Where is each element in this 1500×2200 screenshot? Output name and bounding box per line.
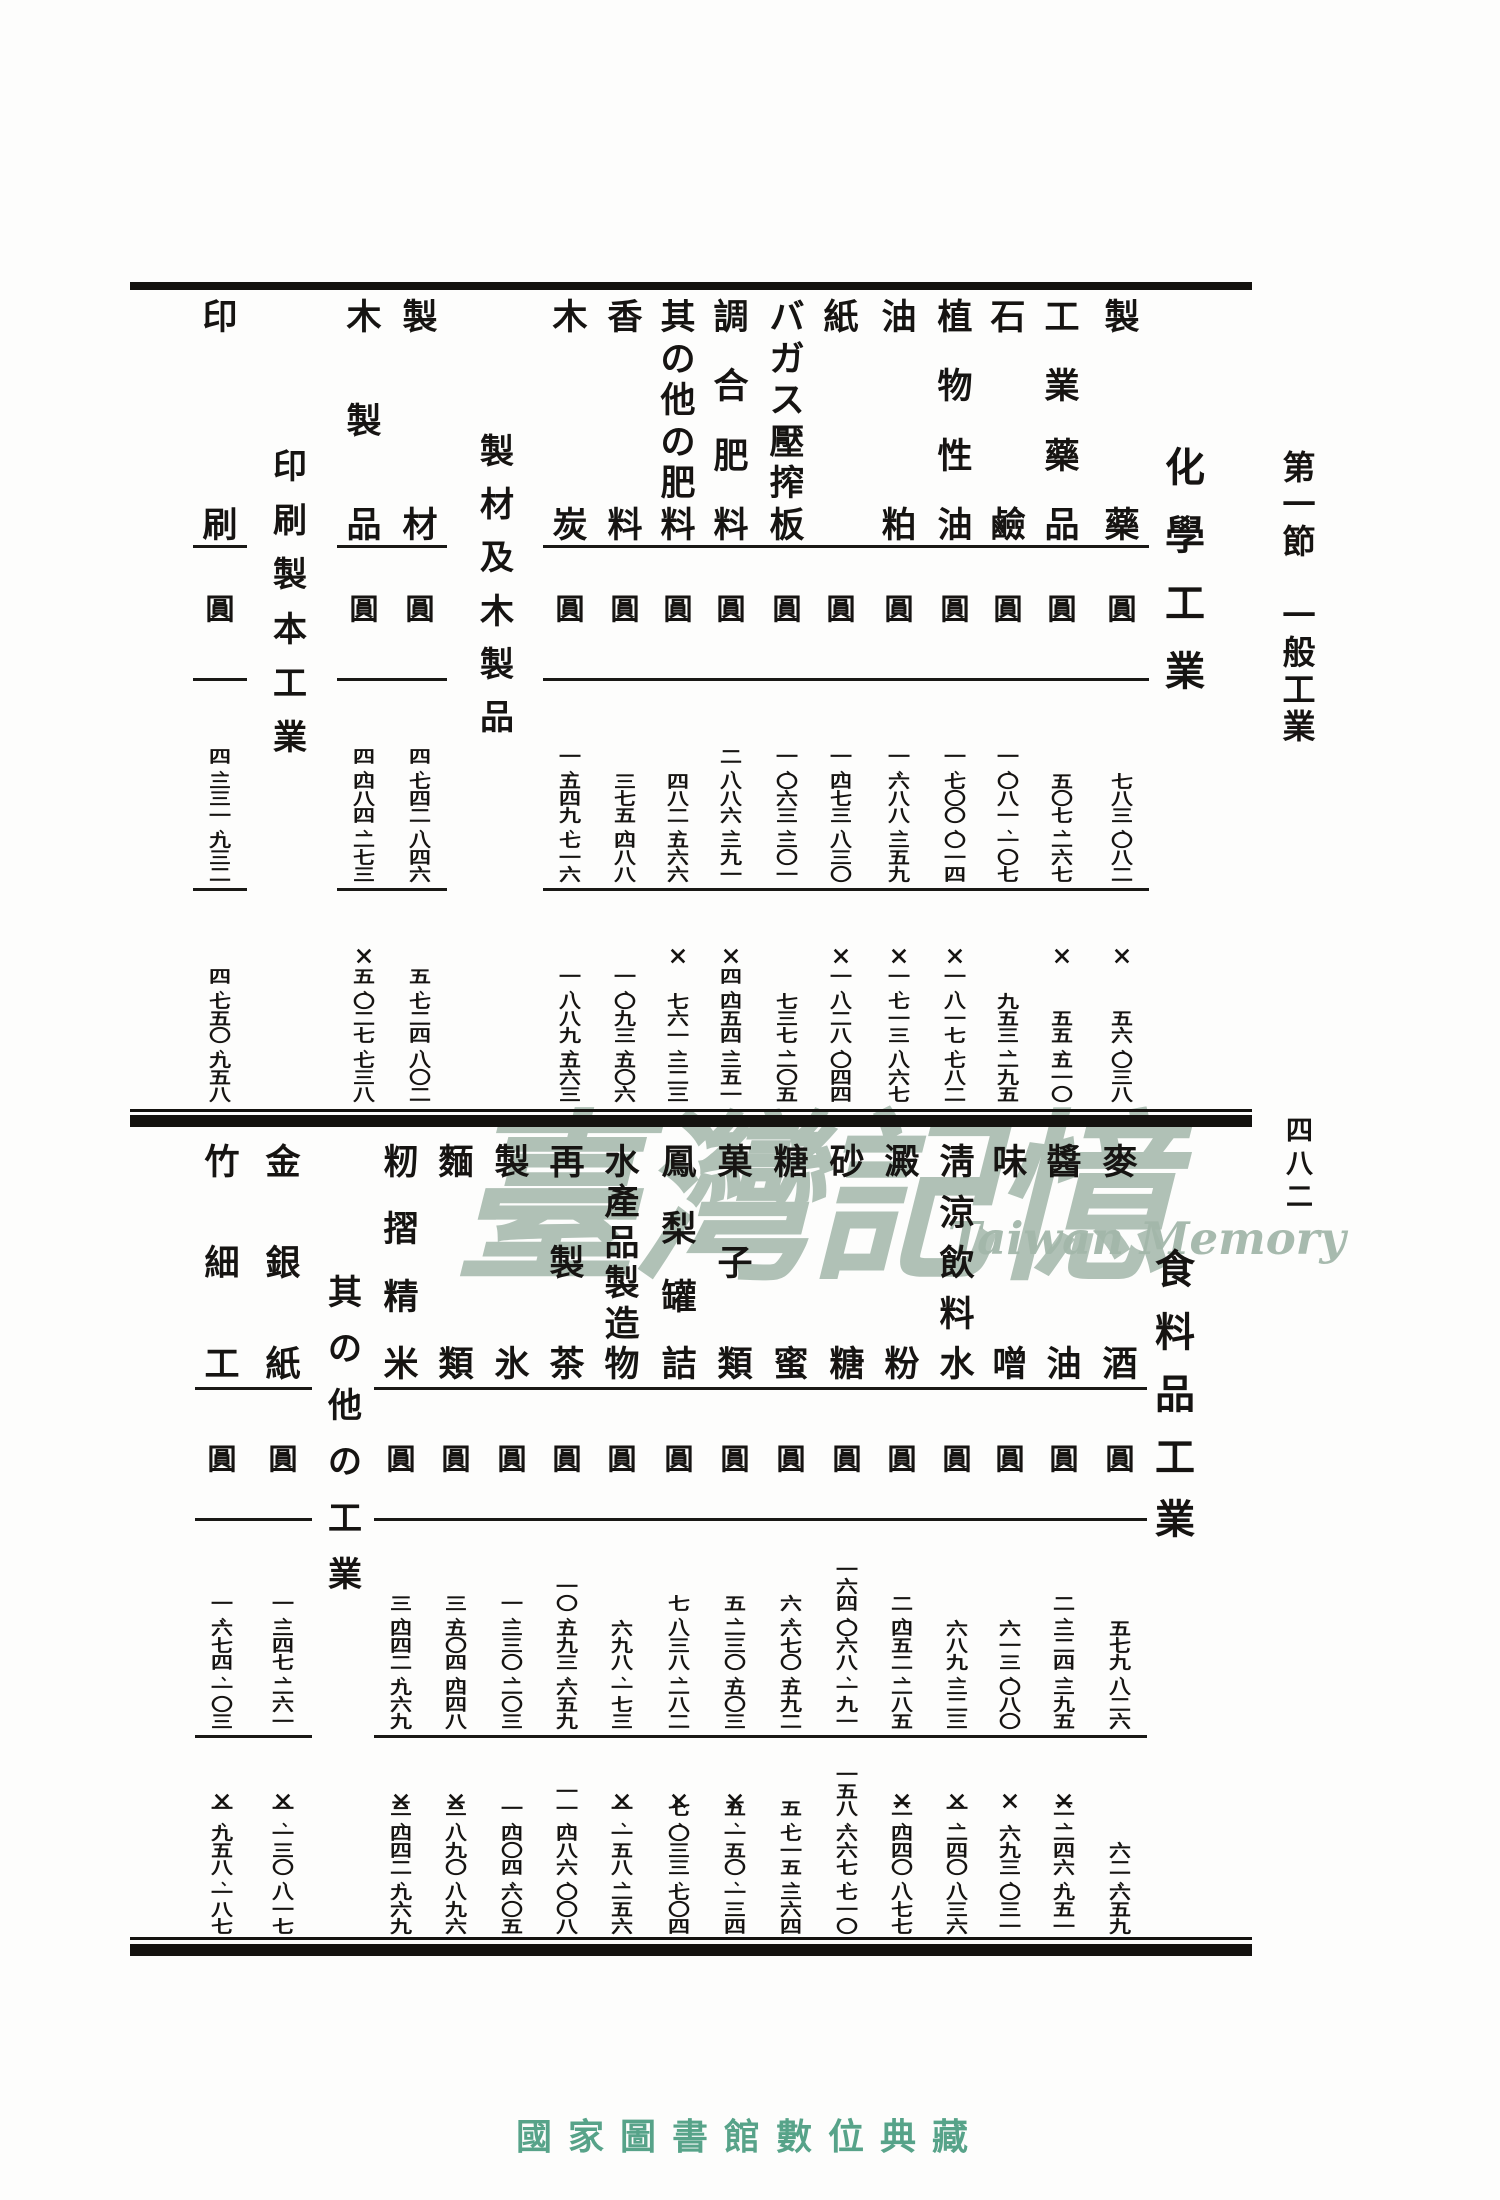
numeral-char: 八 — [662, 1699, 696, 1712]
numeral-char: 〇 — [718, 1657, 752, 1670]
numeral-char: 一 — [938, 1013, 972, 1026]
numeral-char: 八 — [882, 793, 916, 806]
numeral-char: 三 — [1047, 1682, 1081, 1695]
numeral-char: 九 — [714, 852, 748, 865]
industry-label-char: 業 — [1155, 1500, 1195, 1540]
unit-yen: 圓 — [876, 586, 922, 628]
rule-line — [195, 1735, 312, 1738]
numeral-char: 四 — [714, 1030, 748, 1043]
value-row2: 六九三、〇三一 — [993, 1826, 1027, 1936]
numeral-char: 九 — [774, 1699, 808, 1712]
x-marker: × — [439, 1786, 473, 1815]
numeral-char: 五 — [605, 1904, 639, 1917]
column-header-char: 罐 — [661, 1280, 696, 1315]
numeral-char: 五 — [1045, 1030, 1079, 1043]
unit-yen: 圓 — [764, 586, 810, 628]
numeral-char: 七 — [824, 793, 858, 806]
numeral-char: 七 — [662, 1598, 696, 1611]
value-row1: 六九八、一七三 — [605, 1621, 639, 1731]
group-header: 印刷製本工業 — [267, 450, 313, 755]
numeral-char: 一 — [266, 1716, 300, 1729]
numeral-char: 九 — [605, 1640, 639, 1653]
numeral-char: 七 — [403, 776, 437, 789]
group-header-char: 業 — [273, 721, 307, 755]
numeral-char: 七 — [347, 1055, 381, 1068]
numeral-char: 一 — [830, 1904, 864, 1917]
x-marker: × — [1047, 1786, 1081, 1815]
rule-line — [337, 888, 447, 891]
column-header-char: 材 — [402, 508, 437, 543]
numeral-char: 一 — [661, 1030, 695, 1043]
numeral-char: 二 — [718, 1623, 752, 1636]
numeral-char: 六 — [661, 1013, 695, 1026]
numeral-char: 七 — [938, 776, 972, 789]
numeral-char: 九 — [384, 1682, 418, 1695]
numeral-char: 一 — [938, 971, 972, 984]
numeral-char: 八 — [1105, 793, 1139, 806]
numeral-char: 一 — [824, 751, 858, 764]
numeral-char: 四 — [662, 1921, 696, 1934]
numeral-char: 四 — [266, 1640, 300, 1653]
x-marker: × — [605, 1786, 639, 1815]
numeral-char: 二 — [770, 1055, 804, 1068]
column-header-char: 料 — [939, 1297, 974, 1332]
column-header: 籾摺精米 — [378, 1145, 424, 1382]
value-row2: 一、八二八、〇四四 — [824, 969, 858, 1104]
numeral-char: 六 — [770, 793, 804, 806]
group-header-char: 材 — [480, 488, 514, 522]
numeral-char: 〇 — [347, 996, 381, 1009]
value-row1: 七八三、〇八二 — [1105, 774, 1139, 884]
numeral-char: 〇 — [938, 793, 972, 806]
value-row2: 六二、六五九 — [1103, 1843, 1137, 1936]
column-header: 木製品 — [341, 300, 387, 543]
numeral-char: 八 — [991, 793, 1025, 806]
industry-label-char: 業 — [1165, 652, 1205, 692]
unit-yen: 圓 — [932, 586, 978, 628]
numeral-char: 六 — [993, 1623, 1027, 1636]
column-header-char: 金 — [265, 1145, 300, 1180]
numeral-char: 〇 — [993, 1716, 1027, 1729]
numeral-char: 三 — [495, 1640, 529, 1653]
numeral-char: 一 — [938, 852, 972, 865]
numeral-char: 八 — [662, 1623, 696, 1636]
numeral-char: 八 — [605, 1657, 639, 1670]
unit-yen: 圓 — [489, 1436, 535, 1478]
x-marker: × — [347, 941, 381, 970]
numeral-char: 五 — [203, 1072, 237, 1085]
value-row1: 六、六七〇、五九二 — [774, 1596, 808, 1731]
numeral-char: 二 — [940, 1828, 974, 1841]
numeral-char: 三 — [991, 1030, 1025, 1043]
numeral-char: 三 — [605, 1716, 639, 1729]
column-header-char: 醬 — [1046, 1145, 1081, 1180]
numeral-char: 七 — [991, 869, 1025, 882]
numeral-char: 〇 — [993, 1887, 1027, 1900]
numeral-char: 六 — [1105, 1030, 1139, 1043]
numeral-char: 〇 — [550, 1598, 584, 1611]
numeral-char: 〇 — [495, 1657, 529, 1670]
column-header-char: 詰 — [661, 1347, 696, 1382]
numeral-char: 四 — [1047, 1845, 1081, 1858]
numeral-char: 八 — [882, 1055, 916, 1068]
numeral-char: 八 — [608, 869, 642, 882]
x-marker: × — [940, 1786, 974, 1815]
numeral-char: 三 — [266, 1845, 300, 1858]
unit-yen: 圓 — [1097, 1436, 1143, 1478]
numeral-char: 一 — [605, 1828, 639, 1841]
industry-label-char: 品 — [1155, 1375, 1195, 1415]
numeral-char: 一 — [553, 852, 587, 865]
numeral-char: 四 — [203, 751, 237, 764]
value-row2: 五、一五〇、一三四 — [718, 1801, 752, 1936]
numeral-char: 三 — [1105, 1072, 1139, 1085]
column-header-char: 印 — [202, 300, 237, 335]
column-header-char: 細 — [204, 1246, 239, 1281]
value-row1: 一六四、〇六八、一九一 — [830, 1562, 864, 1731]
numeral-char: 五 — [608, 1055, 642, 1068]
column-header: 製氷 — [489, 1145, 535, 1382]
numeral-char: 一 — [495, 1598, 529, 1611]
value-row1: 七、八三八、二八二 — [662, 1596, 696, 1731]
numeral-char: 三 — [608, 776, 642, 789]
column-header: 其の他の肥料 — [655, 300, 701, 543]
value-row2: 二、二四六、九五一 — [1047, 1801, 1081, 1936]
numeral-char: 五 — [550, 1623, 584, 1636]
numeral-char: 四 — [384, 1845, 418, 1858]
value-row1: 四八二、五六六 — [661, 774, 695, 884]
column-header: 製材 — [397, 300, 443, 543]
column-header-char: 糖 — [773, 1145, 808, 1180]
column-header-char: 肥 — [713, 439, 748, 474]
numeral-char: 三 — [718, 1640, 752, 1653]
numeral-char: 一 — [718, 1887, 752, 1900]
table-rule — [130, 282, 1252, 290]
numeral-char: 四 — [439, 1682, 473, 1695]
numeral-char: 〇 — [770, 1072, 804, 1085]
column-header: 鳳梨罐詰 — [656, 1145, 702, 1382]
numeral-char: 五 — [1103, 1623, 1137, 1636]
column-header-char: ガ — [769, 342, 804, 377]
column-header-char: 工 — [1044, 300, 1079, 335]
numeral-char: 二 — [403, 1089, 437, 1102]
value-row2: 七、〇三三、七〇四 — [662, 1801, 696, 1936]
numeral-char: 六 — [550, 1862, 584, 1875]
numeral-char: 五 — [605, 1845, 639, 1858]
numeral-char: 四 — [824, 1089, 858, 1102]
unit-yen: 圓 — [985, 586, 1031, 628]
unit-yen: 圓 — [818, 586, 864, 628]
value-row2: 一、一三〇、八一七 — [266, 1801, 300, 1936]
numeral-char: 八 — [205, 1862, 239, 1875]
numeral-char: 二 — [1047, 1598, 1081, 1611]
numeral-char: 三 — [347, 1072, 381, 1085]
numeral-char: 一 — [550, 1786, 584, 1799]
numeral-char: 七 — [885, 1921, 919, 1934]
numeral-char: 三 — [718, 1716, 752, 1729]
column-header-char: 品 — [604, 1226, 639, 1261]
numeral-char: 七 — [661, 996, 695, 1009]
numeral-char: 四 — [608, 835, 642, 848]
numeral-char: 九 — [203, 835, 237, 848]
numeral-char: 二 — [774, 1716, 808, 1729]
numeral-char: 五 — [608, 810, 642, 823]
numeral-char: 一 — [1045, 1072, 1079, 1085]
value-row1: 二、三二四、三九五 — [1047, 1596, 1081, 1731]
numeral-char: 三 — [495, 1716, 529, 1729]
numeral-char: 九 — [1103, 1657, 1137, 1670]
column-header-char: 製 — [604, 1266, 639, 1301]
unit-yen: 圓 — [655, 586, 701, 628]
numeral-char: 六 — [661, 852, 695, 865]
numeral-char: 五 — [1105, 1013, 1139, 1026]
numeral-char: 三 — [770, 810, 804, 823]
numeral-char: 〇 — [1045, 793, 1079, 806]
value-row2: 一、八一七、七八二 — [938, 969, 972, 1104]
column-header-char: 鳳 — [661, 1145, 696, 1180]
column-header-char: バ — [769, 300, 804, 335]
rule-line — [374, 1387, 1147, 1390]
group-header-char: 印 — [273, 450, 307, 484]
value-row1: 一、〇六三、三〇一 — [770, 749, 804, 884]
numeral-char: 五 — [347, 971, 381, 984]
column-header-char: 子 — [717, 1246, 752, 1281]
value-row2: 五五、五一〇 — [1045, 1011, 1079, 1104]
rule-line — [193, 888, 247, 891]
column-header-char: 產 — [604, 1185, 639, 1220]
value-row2: 五、七二四、八〇二 — [403, 969, 437, 1104]
value-row2: 一、〇九三、五〇六 — [608, 969, 642, 1104]
table-rule — [130, 1944, 1252, 1956]
rule-line — [543, 888, 1149, 891]
numeral-char: 二 — [885, 1657, 919, 1670]
numeral-char: 一 — [266, 1904, 300, 1917]
industry-label-char: 化 — [1165, 448, 1205, 488]
numeral-char: 三 — [203, 852, 237, 865]
numeral-char: 九 — [1047, 1887, 1081, 1900]
numeral-char: 七 — [830, 1862, 864, 1875]
numeral-char: 二 — [403, 810, 437, 823]
numeral-char: 八 — [938, 996, 972, 1009]
numeral-char: 五 — [1045, 1055, 1079, 1068]
numeral-char: 七 — [1105, 776, 1139, 789]
numeral-char: 七 — [608, 793, 642, 806]
numeral-char: 六 — [495, 1887, 529, 1900]
value-row1: 一、六八八、三五九 — [882, 749, 916, 884]
group-header: 其の他の工業 — [322, 1276, 368, 1592]
numeral-char: 二 — [403, 1013, 437, 1026]
numeral-char: 七 — [266, 1921, 300, 1934]
numeral-char: 四 — [347, 751, 381, 764]
numeral-char: 八 — [824, 835, 858, 848]
numeral-char: 〇 — [1045, 1089, 1079, 1102]
numeral-char: 八 — [439, 1828, 473, 1841]
numeral-char: 二 — [940, 1699, 974, 1712]
numeral-char: 六 — [1045, 852, 1079, 865]
column-header: 澱粉 — [879, 1145, 925, 1382]
table-rule — [130, 1937, 1252, 1940]
numeral-char: 六 — [403, 869, 437, 882]
numeral-char: 六 — [774, 1904, 808, 1917]
group-header-char: 工 — [273, 667, 307, 701]
numeral-char: 〇 — [403, 1072, 437, 1085]
x-marker: × — [661, 941, 695, 970]
numeral-char: 二 — [662, 1716, 696, 1729]
group-header-char: 製 — [273, 558, 307, 592]
numeral-char: 二 — [938, 1089, 972, 1102]
numeral-char: 二 — [347, 835, 381, 848]
value-row2: 五、〇二七、七三八 — [347, 969, 381, 1104]
numeral-char: 二 — [824, 1013, 858, 1026]
numeral-char: 四 — [384, 1828, 418, 1841]
value-row1: 三、四四二、九六九 — [384, 1596, 418, 1731]
numeral-char: 六 — [993, 1828, 1027, 1841]
column-header-char: 涼 — [939, 1196, 974, 1231]
numeral-char: 七 — [882, 1089, 916, 1102]
numeral-char: 三 — [882, 1030, 916, 1043]
numeral-char: 五 — [205, 1845, 239, 1858]
numeral-char: 一 — [608, 971, 642, 984]
numeral-char: 一 — [770, 869, 804, 882]
numeral-char: 九 — [384, 1921, 418, 1934]
numeral-char: 七 — [774, 1640, 808, 1653]
numeral-char: 〇 — [718, 1862, 752, 1875]
column-header-char: 合 — [713, 369, 748, 404]
column-header-char: 氷 — [494, 1347, 529, 1382]
numeral-char: 五 — [718, 1845, 752, 1858]
column-header-char: 粕 — [881, 508, 916, 543]
numeral-char: 八 — [605, 1862, 639, 1875]
numeral-char: 四 — [774, 1921, 808, 1934]
numeral-char: 四 — [550, 1828, 584, 1841]
numeral-char: 九 — [203, 1055, 237, 1068]
column-header-char: 品 — [1044, 508, 1079, 543]
numeral-char: 五 — [495, 1921, 529, 1934]
numeral-char: 四 — [714, 996, 748, 1009]
numeral-char: 七 — [885, 1904, 919, 1917]
numeral-char: 六 — [774, 1598, 808, 1611]
numeral-char: 二 — [1103, 1862, 1137, 1875]
numeral-char: 三 — [940, 1682, 974, 1695]
value-row2: 一、九五八、一八七 — [205, 1801, 239, 1936]
numeral-char: 〇 — [495, 1904, 529, 1917]
numeral-char: 四 — [403, 793, 437, 806]
numeral-char: 三 — [553, 1089, 587, 1102]
numeral-char: 八 — [824, 1030, 858, 1043]
numeral-char: 六 — [266, 1699, 300, 1712]
numeral-char: 四 — [384, 1640, 418, 1653]
column-header-char: 木 — [346, 300, 381, 335]
numeral-char: 六 — [774, 1623, 808, 1636]
numeral-char: 八 — [1105, 852, 1139, 865]
numeral-char: 一 — [553, 971, 587, 984]
value-row2: 七六一、三二三 — [661, 994, 695, 1104]
x-marker: × — [938, 941, 972, 970]
numeral-char: 四 — [495, 1862, 529, 1875]
value-row2: 四、七五〇、九五八 — [203, 969, 237, 1104]
column-header-char: 麥 — [1102, 1145, 1137, 1180]
numeral-char: 四 — [384, 1623, 418, 1636]
value-row1: 二、八八六、三九一 — [714, 749, 748, 884]
column-header-char: 油 — [937, 508, 972, 543]
numeral-char: 五 — [714, 1072, 748, 1085]
numeral-char: 一 — [830, 1564, 864, 1577]
value-row1: 一〇、五九三、六五九 — [550, 1579, 584, 1731]
numeral-char: 三 — [770, 1013, 804, 1026]
numeral-char: 三 — [824, 852, 858, 865]
column-header-char: 物 — [604, 1347, 639, 1382]
numeral-char: 四 — [347, 776, 381, 789]
x-marker: × — [882, 941, 916, 970]
numeral-char: 六 — [1103, 1716, 1137, 1729]
numeral-char: 四 — [940, 1845, 974, 1858]
numeral-char: 一 — [991, 835, 1025, 848]
numeral-char: 一 — [205, 1887, 239, 1900]
column-header-char: 籾 — [383, 1145, 418, 1180]
numeral-char: 一 — [938, 751, 972, 764]
value-row1: 四、三三一、九三二 — [203, 749, 237, 884]
numeral-char: 二 — [1103, 1699, 1137, 1712]
column-header-char: 他 — [660, 383, 695, 418]
unit-yen: 圓 — [708, 586, 754, 628]
numeral-char: 六 — [384, 1699, 418, 1712]
numeral-char: 一 — [830, 1716, 864, 1729]
column-header-char: 水 — [604, 1145, 639, 1180]
value-row1: 一、〇八一、一〇七 — [991, 749, 1025, 884]
numeral-char: 一 — [205, 1682, 239, 1695]
column-header-char: 銀 — [265, 1246, 300, 1281]
scanned-page: 臺灣記憶 Taiwan Memory 化學工業製藥圓七八三、〇八二五六、〇三八×… — [0, 0, 1500, 2200]
value-row2: 一、一五八、二五六 — [605, 1801, 639, 1936]
column-header-char: 梨 — [661, 1212, 696, 1247]
numeral-char: 七 — [605, 1699, 639, 1712]
numeral-char: 八 — [830, 1657, 864, 1670]
numeral-char: 五 — [991, 1013, 1025, 1026]
numeral-char: 一 — [882, 751, 916, 764]
numeral-char: 七 — [830, 1887, 864, 1900]
value-row1: 五、二三〇、五〇三 — [718, 1596, 752, 1731]
value-row1: 一、五四九、七一六 — [553, 749, 587, 884]
column-header: 麵類 — [433, 1145, 479, 1382]
group-header-char: 品 — [480, 701, 514, 735]
value-row1: 三七五、四八八 — [608, 774, 642, 884]
numeral-char: 一 — [714, 1089, 748, 1102]
numeral-char: 七 — [774, 1828, 808, 1841]
industry-label-char: 工 — [1155, 1438, 1195, 1478]
numeral-char: 六 — [830, 1828, 864, 1841]
unit-yen: 圓 — [824, 1436, 870, 1478]
numeral-char: 四 — [661, 776, 695, 789]
numeral-char: 七 — [938, 1030, 972, 1043]
column-header-char: 糖 — [829, 1347, 864, 1382]
numeral-char: 〇 — [991, 852, 1025, 865]
numeral-char: 五 — [403, 971, 437, 984]
column-header-char: 紙 — [265, 1347, 300, 1382]
numeral-char: 七 — [205, 1640, 239, 1653]
group-header-char: 木 — [480, 595, 514, 629]
column-header-char: 米 — [383, 1347, 418, 1382]
value-row2: 五、七一五、三六四 — [774, 1801, 808, 1936]
column-header: 紙 — [818, 300, 864, 543]
rule-line — [374, 1735, 1147, 1738]
numeral-char: 〇 — [830, 1921, 864, 1934]
numeral-char: 九 — [384, 1887, 418, 1900]
rule-line — [195, 1387, 312, 1390]
numeral-char: 二 — [662, 1682, 696, 1695]
numeral-char: 九 — [991, 996, 1025, 1009]
numeral-char: 九 — [550, 1716, 584, 1729]
numeral-char: 〇 — [1105, 835, 1139, 848]
